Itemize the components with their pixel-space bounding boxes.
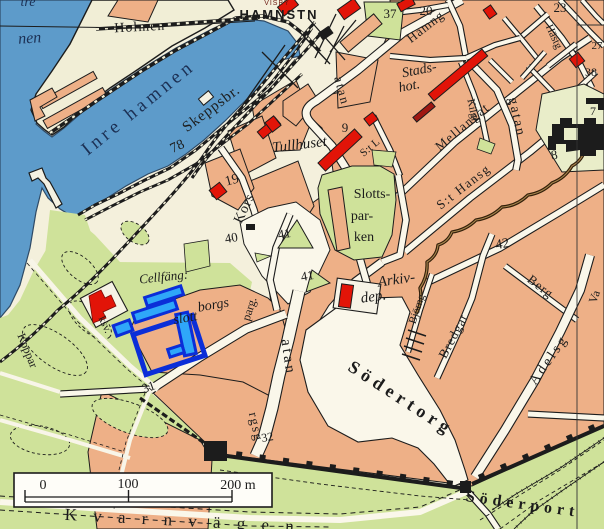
- svg-text:200 m: 200 m: [220, 478, 256, 493]
- svg-text:37: 37: [384, 6, 398, 21]
- svg-text:Holmen: Holmen: [114, 19, 166, 37]
- svg-text:0: 0: [40, 478, 47, 493]
- svg-text:38: 38: [585, 65, 597, 79]
- svg-text:41: 41: [300, 267, 315, 284]
- svg-text:9: 9: [342, 120, 349, 135]
- svg-text:ken: ken: [354, 230, 374, 245]
- svg-text:tre: tre: [20, 0, 35, 10]
- svg-text:41: 41: [277, 225, 292, 242]
- svg-text:40: 40: [224, 229, 239, 246]
- svg-text:Slotts-: Slotts-: [354, 187, 391, 202]
- svg-text:HAMNSTN: HAMNSTN: [240, 7, 319, 22]
- svg-text:23: 23: [554, 0, 567, 15]
- svg-text:VISBY: VISBY: [264, 0, 290, 7]
- svg-text:27: 27: [592, 40, 604, 52]
- svg-text:par-: par-: [351, 209, 374, 224]
- svg-text:7: 7: [590, 104, 596, 118]
- svg-text:100: 100: [118, 477, 139, 492]
- svg-text:nen: nen: [18, 29, 42, 48]
- svg-text:42: 42: [494, 236, 510, 253]
- svg-text:20: 20: [420, 3, 433, 18]
